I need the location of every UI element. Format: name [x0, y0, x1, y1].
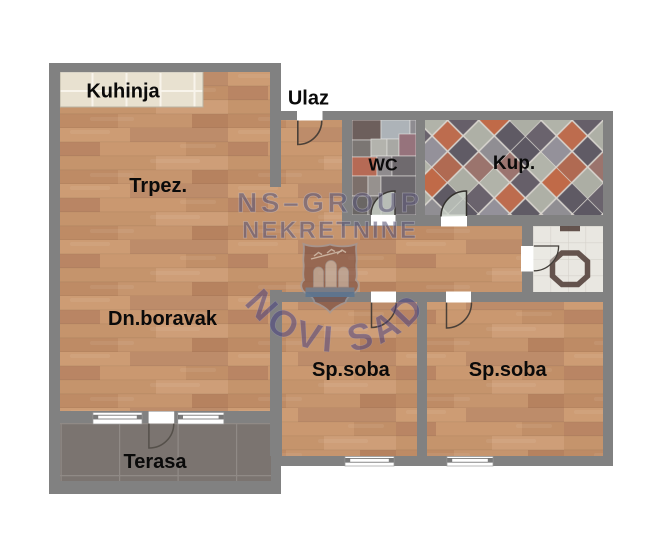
svg-text:Sp.soba: Sp.soba [312, 359, 391, 381]
svg-text:Kup.: Kup. [493, 153, 535, 174]
svg-text:Ulaz: Ulaz [288, 88, 329, 110]
svg-text:Kuhinja: Kuhinja [86, 81, 160, 103]
svg-text:Dn.boravak: Dn.boravak [108, 308, 218, 330]
svg-text:Trpez.: Trpez. [129, 175, 187, 197]
svg-text:Terasa: Terasa [123, 451, 187, 473]
svg-text:WC: WC [368, 155, 398, 175]
svg-text:NEKRETNINE: NEKRETNINE [242, 217, 418, 244]
svg-text:Sp.soba: Sp.soba [469, 359, 548, 381]
svg-text:NS–GROUP: NS–GROUP [237, 187, 423, 218]
